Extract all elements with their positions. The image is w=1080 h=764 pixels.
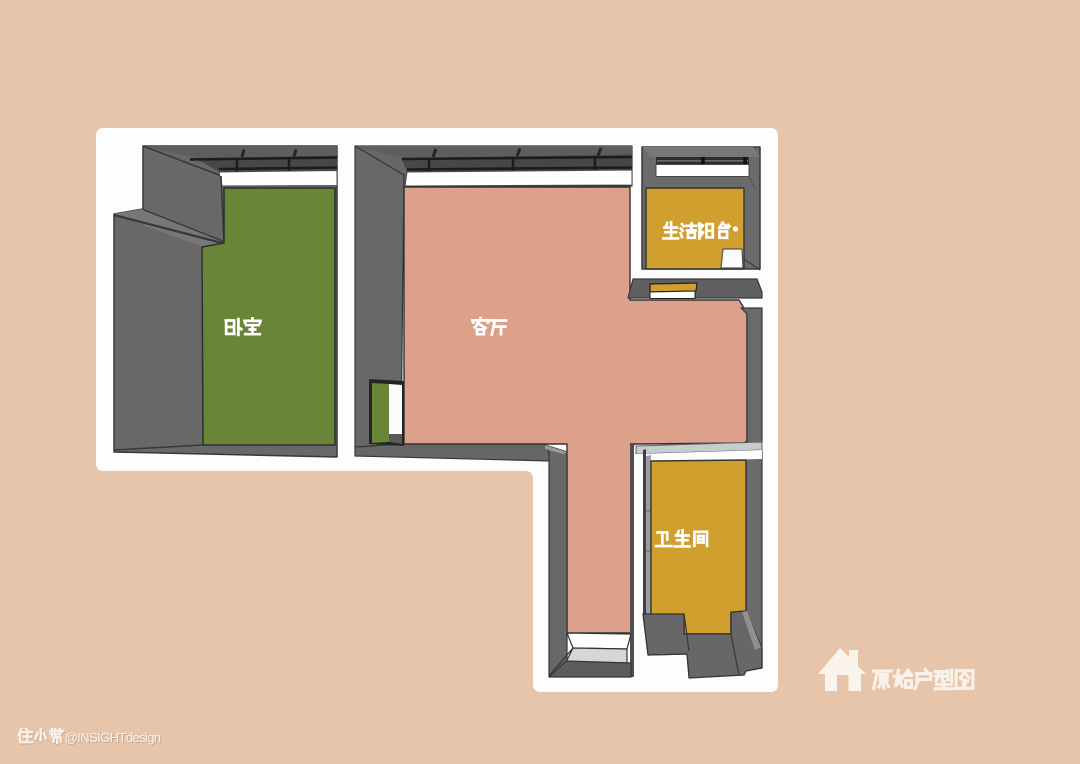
svg-text:@INSIGHTdesign: @INSIGHTdesign bbox=[65, 730, 161, 745]
